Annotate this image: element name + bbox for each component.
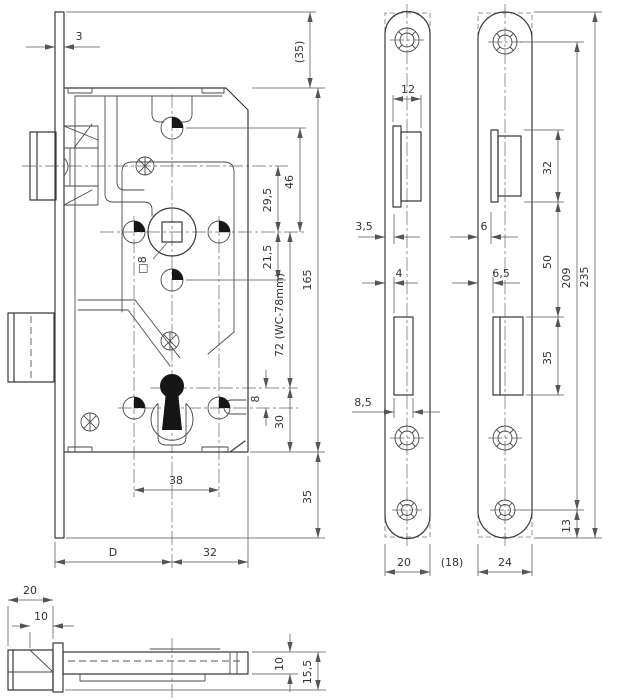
drawing-canvas: 3 (35) 46 29,5 21,5 72 (WC-78mm) 8 30 16… (0, 0, 620, 700)
lock-technical-drawing: 3 (35) 46 29,5 21,5 72 (WC-78mm) 8 30 16… (0, 0, 620, 700)
dim-bolt-offset-24: 6,5 (492, 267, 510, 280)
dimensions-plate24: 32 6 6,5 50 35 209 13 235 (450, 12, 602, 576)
faceplate-bottom-edge (53, 643, 63, 692)
faceplate-24-view: 32 6 6,5 50 35 209 13 235 (450, 4, 602, 576)
dim-hole-to-end-24: 13 (560, 519, 573, 533)
dim-plate20-width-alt: (18) (441, 556, 464, 569)
dim-faceplate-thickness: 3 (76, 30, 83, 43)
dimensions-bottom: 20 10 10 15,5 (8, 584, 326, 692)
deadbolt-opening-24 (493, 317, 523, 395)
dim-total-depth: 15,5 (301, 660, 314, 685)
latch-opening-24 (491, 130, 521, 202)
dim-plate20-width: 20 (397, 556, 411, 569)
screw-head-icon (81, 413, 99, 431)
dim-case-depth: 10 (273, 657, 286, 671)
deadbolt-opening-20 (394, 317, 413, 395)
dim-keyhole-offset: 8 (249, 396, 262, 403)
dim-hub-to-rear: 32 (203, 546, 217, 559)
latch-mechanism (64, 124, 98, 205)
screw-head-icon (161, 332, 179, 350)
dim-bolt-width-20: 8,5 (354, 396, 372, 409)
dim-hole-spacing-24: 209 (560, 268, 573, 289)
dim-latch-width-20: 12 (401, 83, 415, 96)
dim-hole-to-hub: 46 (283, 175, 296, 189)
front-view: 3 (35) 46 29,5 21,5 72 (WC-78mm) 8 30 16… (8, 12, 325, 570)
dimensions-plate20: 12 3,5 4 8,5 20 (18) (352, 83, 463, 576)
dim-bottom-section: 35 (301, 490, 314, 504)
dim-plate24-width: 24 (498, 556, 512, 569)
dim-spindle-square: □8 (136, 256, 149, 273)
dim-screw-to-hub: 29,5 (261, 188, 274, 213)
dim-case-height: 165 (301, 270, 314, 291)
dim-top-clearance: (35) (293, 41, 306, 64)
dead-bolt (8, 313, 54, 382)
dim-latch-height-24: 32 (541, 161, 554, 175)
dim-latch-offset-20: 3,5 (355, 220, 373, 233)
dim-head-depth: 10 (34, 610, 48, 623)
dim-hub-to-keyhole: 72 (WC-78mm) (273, 273, 286, 357)
dim-latch-to-bolt: 50 (541, 255, 554, 269)
dim-bolt-offset-20: 4 (396, 267, 403, 280)
case-bottom-profile (63, 649, 248, 681)
dim-latch-offset-24: 6 (481, 220, 488, 233)
bottom-view: 20 10 10 15,5 (8, 584, 326, 700)
faceplate-edge (55, 12, 64, 538)
faceplate-20-view: 12 3,5 4 8,5 20 (18) (352, 4, 463, 576)
dim-hole-spacing: 38 (169, 474, 183, 487)
latch-head-bottom (8, 650, 53, 690)
dim-keyhole-to-bottom: 30 (273, 415, 286, 429)
dim-plate24-length: 235 (578, 267, 591, 288)
dim-head-width: 20 (23, 584, 37, 597)
dim-bolt-height-24: 35 (541, 351, 554, 365)
dim-backset: D (109, 546, 117, 559)
dim-hub-to-hole: 21,5 (261, 245, 274, 270)
